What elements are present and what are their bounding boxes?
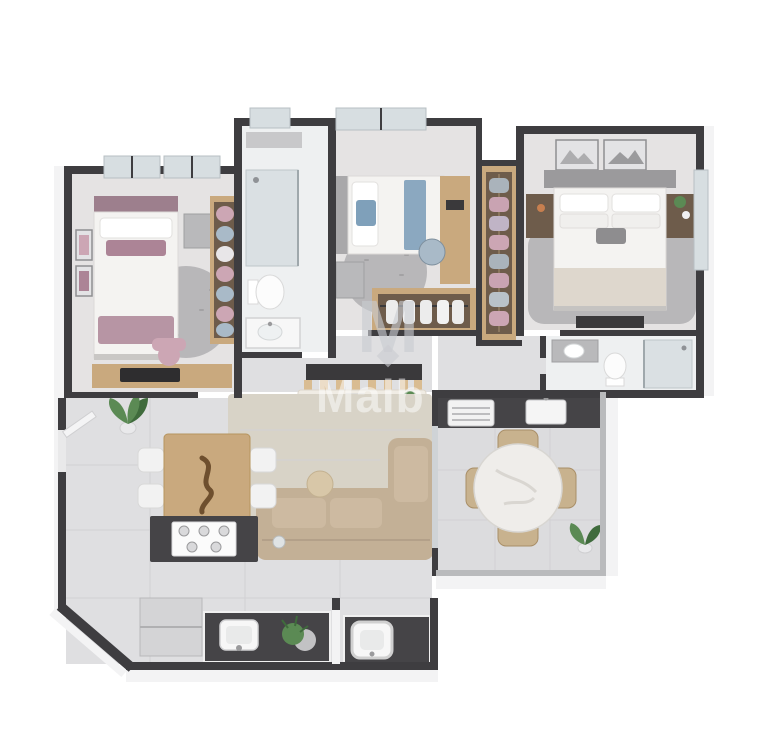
hanging-garment bbox=[489, 197, 509, 212]
bottom-wall-face bbox=[126, 670, 438, 682]
wall bbox=[126, 662, 438, 670]
desk-chair bbox=[158, 344, 180, 366]
toilet bbox=[256, 275, 284, 309]
sliding-glass-door bbox=[432, 426, 438, 548]
wall bbox=[476, 340, 522, 346]
burner bbox=[199, 526, 209, 536]
wall bbox=[432, 390, 704, 398]
hanging-garment bbox=[216, 246, 234, 262]
nightstand-decor bbox=[537, 204, 545, 212]
bed-pillow bbox=[612, 194, 660, 212]
sofa-seat-cushion bbox=[330, 498, 382, 528]
wall bbox=[58, 472, 66, 608]
kitchen-island bbox=[150, 516, 258, 562]
floor-plan-canvas: M Malb bbox=[0, 0, 758, 753]
hanging-garment bbox=[489, 178, 509, 193]
toilet bbox=[604, 353, 626, 379]
bed-headboard bbox=[544, 170, 676, 188]
wall bbox=[516, 126, 702, 134]
burner bbox=[179, 526, 189, 536]
bed-throw bbox=[404, 180, 426, 250]
desk-chair bbox=[419, 239, 445, 265]
sofa-seat-cushion bbox=[272, 498, 326, 528]
hanging-garment bbox=[489, 273, 509, 288]
wall bbox=[476, 118, 482, 346]
shower-head bbox=[253, 177, 259, 183]
bed-headboard bbox=[94, 196, 178, 214]
shower bbox=[246, 170, 298, 266]
faucet bbox=[236, 645, 242, 651]
vanity-basin bbox=[564, 344, 584, 358]
bed-headboard bbox=[336, 176, 348, 254]
vanity-basin bbox=[258, 324, 282, 340]
bed-blanket bbox=[554, 268, 666, 310]
hanging-garment bbox=[216, 206, 234, 222]
service-wall-stub-face bbox=[332, 606, 340, 664]
nightstand-decor bbox=[682, 211, 690, 219]
balcony-sink bbox=[526, 400, 566, 424]
desk-laptop bbox=[120, 368, 180, 382]
bed-pillow bbox=[560, 194, 608, 212]
wall bbox=[476, 160, 522, 166]
hanging-garment bbox=[489, 292, 509, 307]
bed-base bbox=[554, 306, 666, 311]
hanging-garment bbox=[489, 254, 509, 269]
faucet bbox=[370, 652, 375, 657]
bed-pillow bbox=[100, 218, 172, 238]
wall bbox=[430, 598, 438, 670]
hanging-garment bbox=[489, 311, 509, 326]
balcony-railing bbox=[436, 570, 606, 576]
wall-art-frame bbox=[604, 140, 646, 170]
wall bbox=[540, 336, 546, 358]
dining-chair bbox=[138, 484, 164, 508]
bed-cushion bbox=[596, 228, 626, 244]
balcony-right-wall-face bbox=[606, 392, 618, 576]
hanging-garment bbox=[216, 323, 234, 337]
round-pillow bbox=[307, 471, 333, 497]
hanging-garment bbox=[489, 216, 509, 231]
shower-drain bbox=[682, 346, 687, 351]
hanging-garment bbox=[216, 226, 234, 242]
hanging-garment bbox=[216, 266, 234, 282]
floor-plan-image: M Malb bbox=[0, 0, 758, 753]
watermark-text: Malb bbox=[316, 370, 425, 422]
kitchen-laundry-strip bbox=[204, 612, 430, 666]
tub-basin bbox=[360, 630, 384, 650]
plant-pot bbox=[578, 543, 592, 553]
burner bbox=[219, 526, 229, 536]
hanging-garment bbox=[216, 306, 234, 322]
hanging-garment bbox=[437, 300, 449, 324]
hanging-garment bbox=[452, 300, 464, 324]
balcony-railing bbox=[600, 392, 606, 576]
bathroom-shelf bbox=[246, 132, 302, 148]
wall bbox=[516, 126, 524, 336]
desk-item bbox=[446, 200, 464, 210]
plant bbox=[674, 196, 686, 208]
hanging-garment bbox=[216, 286, 234, 302]
wall bbox=[328, 118, 336, 358]
dining-chair bbox=[250, 448, 276, 472]
bed-pillow bbox=[612, 214, 660, 228]
wall bbox=[64, 392, 198, 398]
faucet bbox=[268, 322, 272, 326]
desk bbox=[440, 176, 470, 284]
bed-pillow-blue bbox=[356, 200, 376, 226]
counter-plant bbox=[282, 623, 304, 645]
wall bbox=[432, 398, 438, 426]
wall bbox=[58, 398, 66, 430]
burner bbox=[187, 542, 197, 552]
burner bbox=[211, 542, 221, 552]
sofa-chaise-cushion bbox=[394, 446, 428, 502]
floor-vase bbox=[273, 536, 285, 548]
walk-in-closet bbox=[482, 166, 516, 340]
balcony-bottom-wall-face bbox=[436, 576, 606, 589]
wall bbox=[64, 166, 72, 398]
wall bbox=[240, 352, 302, 358]
wall-art bbox=[79, 235, 89, 255]
round-dining-table bbox=[474, 444, 562, 532]
bed-cushion bbox=[106, 240, 166, 256]
wall bbox=[560, 330, 696, 336]
sink-basin bbox=[226, 626, 252, 644]
service-wall-stub bbox=[332, 598, 340, 610]
bed-pillow bbox=[560, 214, 608, 228]
master-side-window bbox=[694, 170, 708, 270]
dining-chair bbox=[250, 484, 276, 508]
bathroom-window bbox=[250, 108, 290, 128]
nightstand bbox=[526, 194, 556, 238]
entry-door-opening bbox=[58, 430, 66, 472]
wall-art-frame bbox=[556, 140, 598, 170]
dining-chair bbox=[138, 448, 164, 472]
hanging-garment bbox=[489, 235, 509, 250]
hanging-garment bbox=[420, 300, 432, 324]
tv-console bbox=[576, 316, 644, 328]
wall-art bbox=[79, 271, 89, 291]
